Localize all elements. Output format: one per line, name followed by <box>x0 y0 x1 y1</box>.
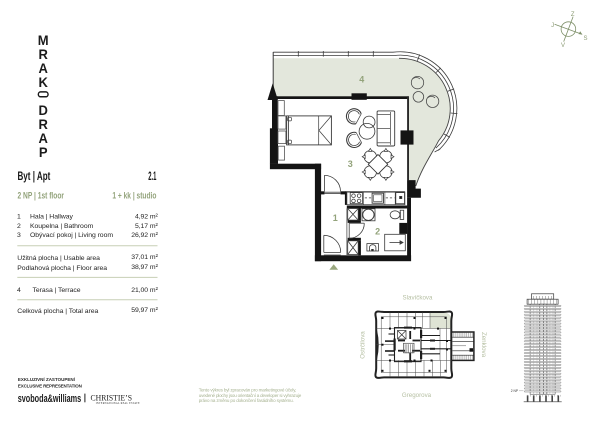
svg-text:26,92 m²: 26,92 m² <box>131 232 158 239</box>
svg-text:Celková plocha | Total area: Celková plocha | Total area <box>17 308 98 315</box>
svg-text:Koupelna | Bathroom: Koupelna | Bathroom <box>30 223 94 230</box>
svg-text:1 + kk | studio: 1 + kk | studio <box>112 191 156 201</box>
svg-text:Byt | Apt: Byt | Apt <box>18 169 51 183</box>
svg-text:59,97 m²: 59,97 m² <box>131 307 158 314</box>
svg-text:Užitná plocha | Usable area: Užitná plocha | Usable area <box>17 255 100 262</box>
svg-text:právo na změnu po dokončení fa: právo na změnu po dokončení fasádního sy… <box>199 398 294 403</box>
svg-text:Ostrčilova: Ostrčilova <box>360 331 367 359</box>
svg-text:EXCLUSIVE REPRESENTATION: EXCLUSIVE REPRESENTATION <box>18 384 82 389</box>
svg-text:37,01 m²: 37,01 m² <box>131 254 158 261</box>
svg-text:2: 2 <box>17 223 21 230</box>
svg-text:4: 4 <box>359 75 364 85</box>
svg-text:CHRISTIE’S: CHRISTIE’S <box>91 392 133 402</box>
svg-text:1: 1 <box>333 213 338 223</box>
svg-text:2.1: 2.1 <box>148 169 156 183</box>
svg-text:S: S <box>584 36 588 42</box>
svg-text:Terasa | Terrace: Terasa | Terrace <box>33 287 81 294</box>
svg-text:Podlahová plocha | Floor area: Podlahová plocha | Floor area <box>17 265 107 272</box>
svg-text:Gregorova: Gregorova <box>402 392 432 399</box>
svg-text:V: V <box>561 43 565 49</box>
svg-text:K: K <box>39 75 49 91</box>
svg-text:5,17 m²: 5,17 m² <box>135 223 159 230</box>
svg-text:Obývací pokoj | Living room: Obývací pokoj | Living room <box>30 232 113 239</box>
svg-text:P: P <box>39 145 48 161</box>
svg-text:38,97 m²: 38,97 m² <box>131 264 158 271</box>
svg-text:Slavíčkova: Slavíčkova <box>403 294 433 301</box>
svg-text:Zenklova: Zenklova <box>480 332 487 358</box>
svg-text:Z: Z <box>571 12 575 18</box>
svg-text:2 NP: 2 NP <box>511 389 519 393</box>
svg-text:1: 1 <box>17 214 21 221</box>
svg-text:svoboda&williams: svoboda&williams <box>18 393 82 405</box>
svg-text:2 NP | 1st floor: 2 NP | 1st floor <box>18 191 65 201</box>
svg-text:21,00 m²: 21,00 m² <box>131 287 158 294</box>
svg-text:3: 3 <box>17 232 21 239</box>
svg-text:INTERNATIONAL REAL ESTATE: INTERNATIONAL REAL ESTATE <box>96 402 140 405</box>
svg-text:3: 3 <box>348 159 353 169</box>
svg-text:EXKLUZIVNÍ ZASTOUPENÍ: EXKLUZIVNÍ ZASTOUPENÍ <box>18 375 76 382</box>
svg-text:4: 4 <box>17 287 21 294</box>
svg-text:Hala | Hallway: Hala | Hallway <box>30 214 74 221</box>
svg-text:J: J <box>551 23 554 29</box>
svg-text:4,92 m²: 4,92 m² <box>135 214 159 221</box>
svg-text:2: 2 <box>375 226 380 236</box>
